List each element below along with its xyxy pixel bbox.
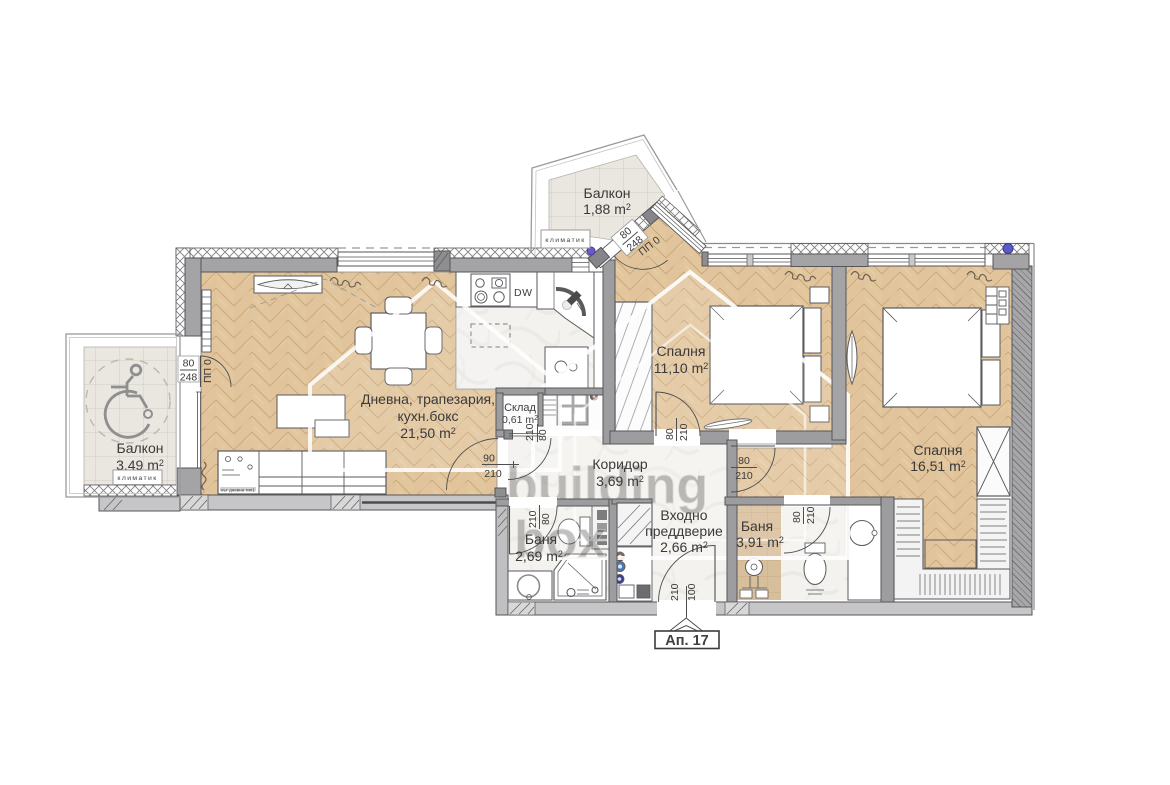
svg-text:Спалня: Спалня: [914, 442, 963, 458]
svg-text:кухн.бокс: кухн.бокс: [398, 408, 459, 424]
svg-text:Входно: Входно: [660, 507, 707, 523]
svg-text:Дневна, трапезария,: Дневна, трапезария,: [361, 391, 495, 407]
svg-text:кът дневна тип1: кът дневна тип1: [221, 488, 255, 493]
svg-text:100: 100: [686, 583, 698, 601]
svg-text:преддверие: преддверие: [645, 523, 723, 539]
svg-text:Баня: Баня: [741, 518, 773, 534]
svg-text:2,69 m2: 2,69 m2: [515, 548, 563, 564]
svg-text:Баня: Баня: [525, 531, 557, 547]
svg-text:Склад: Склад: [504, 402, 536, 414]
svg-text:2,66 m2: 2,66 m2: [660, 539, 708, 555]
svg-text:90: 90: [483, 453, 495, 465]
svg-text:21,50 m2: 21,50 m2: [400, 425, 456, 441]
svg-text:Балкон: Балкон: [584, 185, 631, 201]
svg-text:ПП 0: ПП 0: [202, 359, 214, 383]
svg-text:16,51 m2: 16,51 m2: [910, 458, 966, 474]
svg-text:3,69 m2: 3,69 m2: [596, 473, 644, 489]
svg-text:Коридор: Коридор: [592, 456, 648, 472]
svg-text:Балкон: Балкон: [117, 440, 164, 456]
svg-text:210: 210: [669, 583, 681, 601]
svg-text:1,88 m2: 1,88 m2: [583, 201, 631, 217]
svg-text:210: 210: [527, 510, 539, 528]
svg-text:210: 210: [524, 423, 536, 441]
svg-text:80: 80: [791, 511, 803, 523]
svg-text:климатик: климатик: [117, 475, 157, 482]
svg-text:210: 210: [805, 506, 817, 524]
svg-text:80: 80: [664, 428, 676, 440]
svg-text:Спалня: Спалня: [657, 343, 706, 359]
svg-text:80: 80: [183, 358, 195, 370]
svg-text:климатик: климатик: [545, 237, 585, 244]
svg-text:210: 210: [735, 470, 753, 482]
svg-text:80: 80: [540, 513, 552, 525]
svg-text:80: 80: [537, 429, 549, 441]
svg-text:210: 210: [678, 423, 690, 441]
svg-text:210: 210: [484, 468, 502, 480]
svg-text:DW: DW: [514, 287, 533, 299]
svg-text:11,10 m2: 11,10 m2: [654, 360, 709, 376]
svg-text:248: 248: [180, 372, 198, 384]
svg-text:3,91 m2: 3,91 m2: [736, 534, 784, 550]
svg-text:Ап. 17: Ап. 17: [665, 633, 708, 649]
svg-text:80: 80: [738, 455, 750, 467]
